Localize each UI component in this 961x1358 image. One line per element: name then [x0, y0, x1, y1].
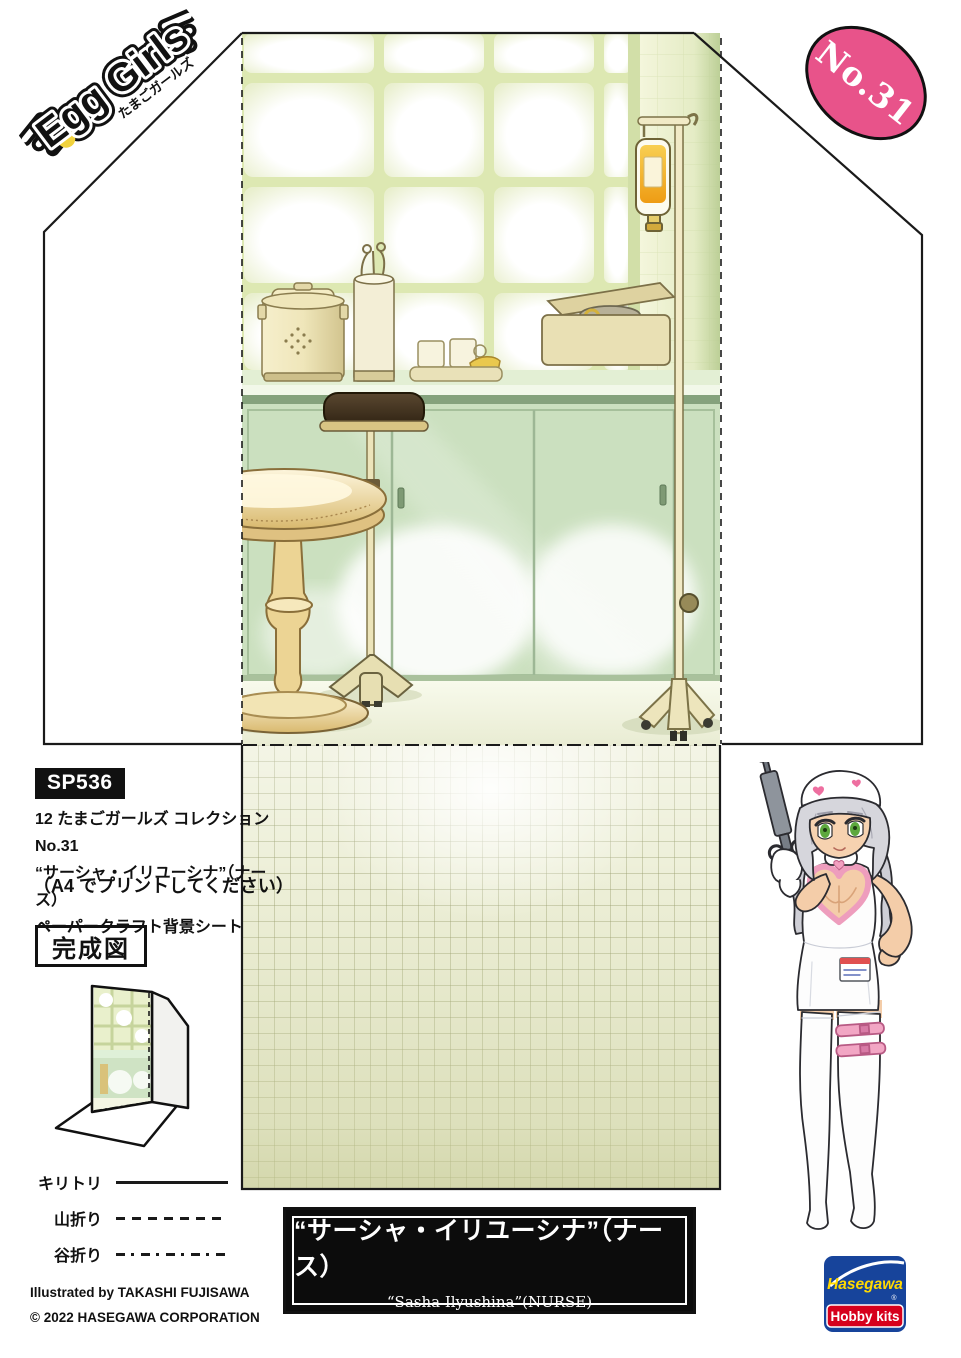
background-scene-panel [242, 33, 720, 745]
illustrator-credit: Illustrated by TAKASHI FUJISAWA [30, 1280, 260, 1305]
badge-number: No.31 [809, 33, 923, 134]
publisher-brand: Hasegawa [827, 1276, 903, 1293]
diagram-scene-thumbnail [92, 986, 152, 1112]
completed-figure-box: 完成図 [35, 925, 147, 967]
glass-cabinet [242, 404, 720, 685]
hasegawa-logo: Hasegawa ® Hobby kits [824, 1256, 906, 1332]
legend-row-valley-fold: 谷折り [30, 1236, 260, 1272]
dashdot-line-sample [116, 1253, 228, 1256]
product-code-badge: SP536 [35, 768, 125, 799]
diagram-side-panel [152, 992, 188, 1108]
publisher-product-line: Hobby kits [830, 1309, 899, 1324]
completed-figure-diagram [48, 980, 224, 1162]
credits: Illustrated by TAKASHI FUJISAWA © 2022 H… [30, 1280, 260, 1330]
line-legend: キリトリ 山折り 谷折り [30, 1164, 260, 1272]
completed-figure-label: 完成図 [52, 929, 130, 964]
stocking-left [800, 1012, 832, 1229]
product-code: SP536 [47, 771, 113, 794]
legend-mountain-label: 山折り [30, 1206, 102, 1230]
legend-row-mountain-fold: 山折り [30, 1200, 260, 1236]
character-name-en: “Sasha Ilyushina”(NURSE) [387, 1293, 592, 1311]
sterilizer-pot [258, 283, 348, 381]
badge-oval: No.31 [783, 2, 950, 164]
character-title-box: “サーシャ・イリユーシナ”（ナース） “Sasha Ilyushina”(NUR… [283, 1207, 696, 1314]
character-name-jp: “サーシャ・イリユーシナ”（ナース） [294, 1211, 685, 1283]
legend-row-cut: キリトリ [30, 1164, 260, 1200]
dashed-line-sample [116, 1217, 228, 1220]
legend-valley-label: 谷折り [30, 1242, 102, 1266]
nurse-character-illustration [742, 762, 955, 1235]
number-badge: No.31 [783, 2, 950, 164]
description-line-1: 12 たまごガールズ コレクション No.31 [35, 806, 285, 860]
title-frame: “サーシャ・イリユーシナ”（ナース） “Sasha Ilyushina”(NUR… [292, 1216, 687, 1305]
registered-mark: ® [891, 1294, 897, 1302]
brand-logo: Egg Girls Egg Girls Egg Girls たまごガールズ [0, 0, 239, 205]
copyright-notice: © 2022 HASEGAWA CORPORATION [30, 1305, 260, 1330]
legend-cut-label: キリトリ [30, 1170, 102, 1194]
medical-room-scene [242, 33, 720, 745]
solid-line-sample [116, 1181, 228, 1184]
floor-grid-panel [242, 745, 720, 1190]
papercraft-sheet: Egg Girls Egg Girls Egg Girls たまごガールズ No… [0, 0, 961, 1358]
print-note: （A4 でプリントしてください） [33, 872, 294, 898]
id-badge [840, 958, 870, 981]
